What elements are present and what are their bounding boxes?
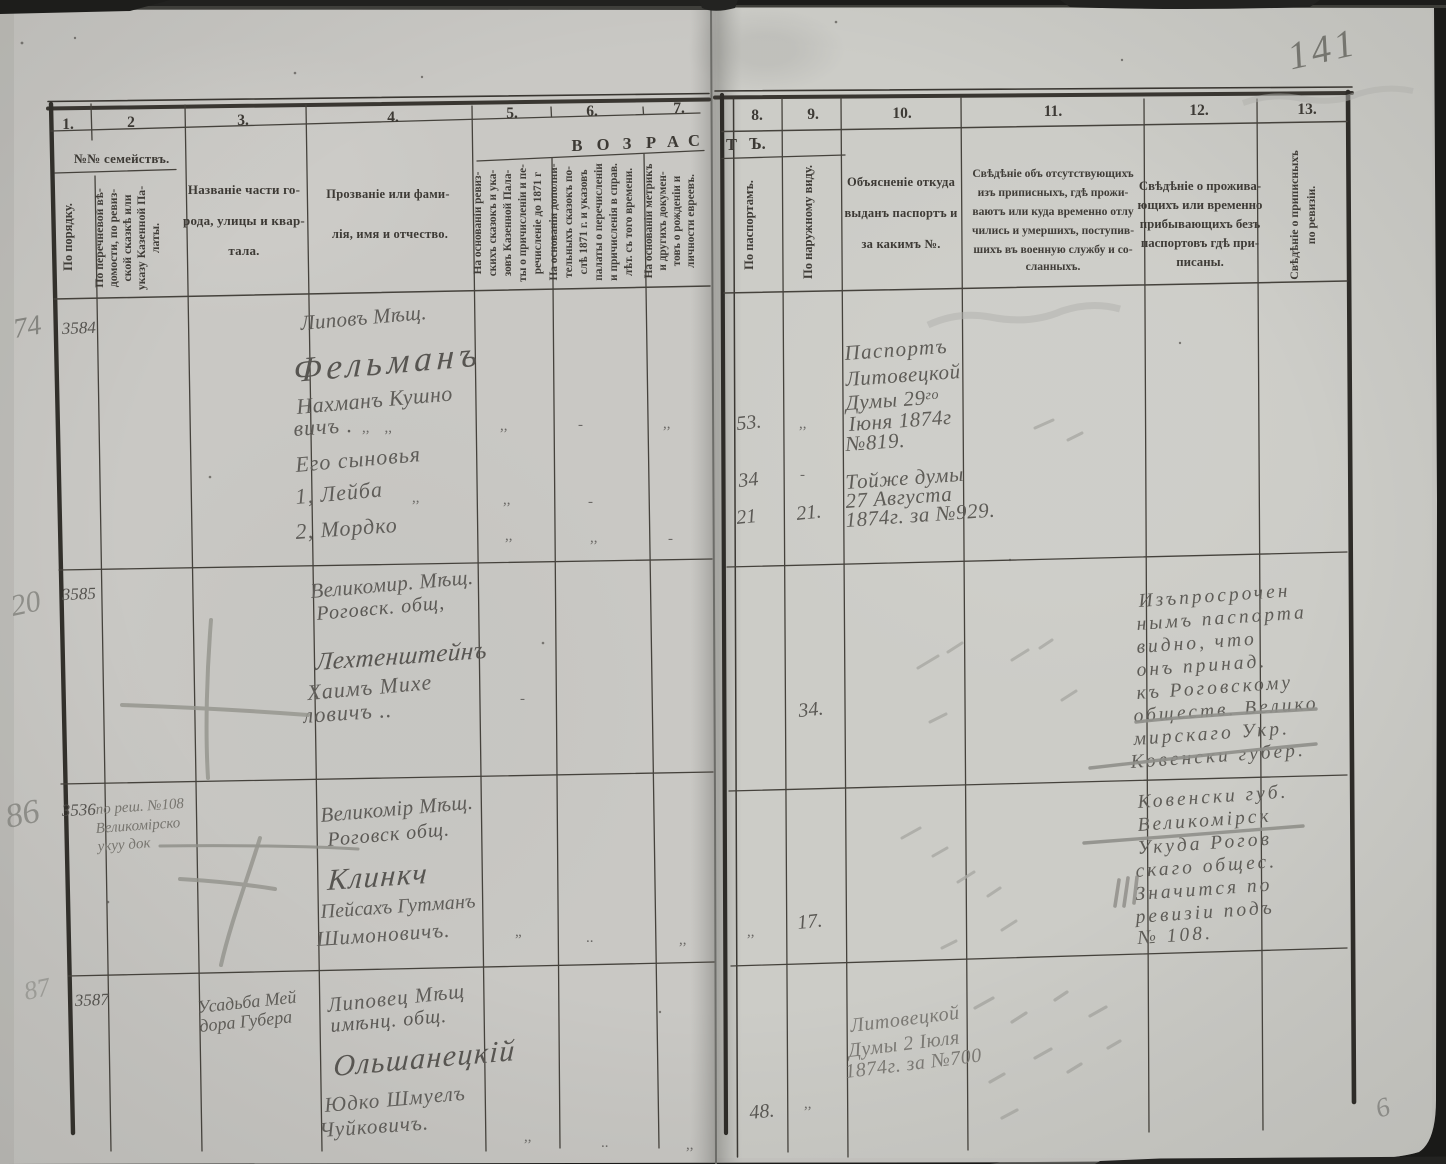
- svg-text:шихъ въ военную службу и со-: шихъ въ военную службу и со-: [973, 243, 1132, 256]
- svg-text:34: 34: [736, 468, 759, 492]
- svg-text:,,: ,,: [524, 1129, 532, 1145]
- svg-text:писаны.: писаны.: [1176, 255, 1224, 269]
- svg-text:3584: 3584: [60, 318, 96, 338]
- svg-text:Свѣдѣніе объ отсутствующихъ: Свѣдѣніе объ отсутствующихъ: [972, 167, 1134, 180]
- svg-text:,,: ,,: [505, 528, 513, 544]
- svg-text:домости, по ревиз-: домости, по ревиз-: [106, 189, 120, 287]
- svg-text:чились и умершихъ, поступив-: чились и умершихъ, поступив-: [972, 224, 1134, 237]
- svg-text:Объясненіе откуда: Объясненіе откуда: [847, 175, 956, 189]
- svg-text:-: -: [800, 467, 805, 483]
- svg-text:,,: ,,: [663, 416, 671, 432]
- svg-text:„: „: [515, 924, 522, 940]
- svg-text:3587: 3587: [73, 990, 110, 1010]
- svg-text:Названіе части го-: Названіе части го-: [188, 182, 300, 197]
- svg-text:Ъ.: Ъ.: [749, 134, 766, 153]
- svg-text:3585: 3585: [60, 584, 96, 604]
- svg-text:лѣт. съ того времени.: лѣт. съ того времени.: [623, 168, 635, 276]
- svg-text:Т: Т: [726, 135, 737, 154]
- svg-text:-: -: [668, 531, 673, 547]
- svg-text:речисленіе до 1871 г: речисленіе до 1871 г: [532, 172, 544, 274]
- svg-text:,,: ,,: [503, 492, 511, 508]
- svg-text:за какимъ №.: за какимъ №.: [861, 237, 940, 251]
- svg-text:9.: 9.: [807, 106, 819, 123]
- svg-text:тала.: тала.: [228, 243, 259, 258]
- svg-text:выданъ паспортъ и: выданъ паспортъ и: [844, 206, 957, 220]
- svg-text:Свѣдѣніе о прожива-: Свѣдѣніе о прожива-: [1139, 179, 1261, 193]
- svg-text:зовъ Казенной Пала-: зовъ Казенной Пала-: [502, 169, 514, 276]
- svg-text:С: С: [688, 131, 700, 150]
- svg-text:,,: ,,: [799, 416, 807, 432]
- svg-text:ваютъ или куда временно отлу: ваютъ или куда временно отлу: [972, 205, 1134, 218]
- svg-text:По перечневой вѣ-: По перечневой вѣ-: [92, 188, 106, 288]
- svg-text:,,: ,,: [804, 1096, 812, 1112]
- svg-text:..: ..: [586, 930, 594, 946]
- svg-text:В: В: [571, 136, 582, 155]
- svg-text:личности евреевъ.: личности евреевъ.: [685, 174, 697, 268]
- svg-text:ты о причисленіи и пе-: ты о причисленіи и пе-: [517, 164, 529, 282]
- svg-text:5.: 5.: [506, 105, 518, 122]
- svg-text:48.: 48.: [748, 1099, 775, 1123]
- svg-text:,,: ,,: [590, 530, 598, 546]
- svg-text:ющихъ или временно: ющихъ или временно: [1138, 198, 1263, 212]
- svg-text:,,: ,,: [747, 924, 755, 940]
- svg-text:53.: 53.: [735, 410, 762, 434]
- svg-text:вичъ .: вичъ .: [293, 412, 354, 441]
- svg-text:тельныхъ сказокъ по-: тельныхъ сказокъ по-: [563, 166, 575, 278]
- svg-text:По порядку.: По порядку.: [61, 203, 75, 271]
- svg-text:11.: 11.: [1044, 103, 1063, 120]
- svg-text:З: З: [623, 134, 632, 153]
- svg-text:сланныхъ.: сланныхъ.: [1026, 260, 1081, 273]
- svg-text:7.: 7.: [673, 100, 685, 117]
- svg-text:скихъ сказокъ и ука-: скихъ сказокъ и ука-: [487, 170, 499, 277]
- svg-text:17.: 17.: [796, 909, 823, 933]
- svg-text:34.: 34.: [796, 697, 824, 722]
- svg-text:10.: 10.: [892, 105, 912, 122]
- svg-text:8.: 8.: [751, 107, 763, 124]
- svg-text:палаты о перечисленіи: палаты о перечисленіи: [593, 163, 605, 281]
- svg-text:по ревизіи.: по ревизіи.: [1304, 186, 1318, 244]
- svg-text:№№ семействъ.: №№ семействъ.: [74, 151, 169, 166]
- svg-text:21: 21: [735, 505, 757, 529]
- svg-text:О: О: [597, 135, 610, 154]
- svg-text:На основаніи дополни-: На основаніи дополни-: [548, 163, 560, 280]
- svg-text:лія, имя и отчество.: лія, имя и отчество.: [332, 227, 448, 241]
- svg-text:,,: ,,: [679, 932, 687, 948]
- svg-text:,,: ,,: [412, 490, 420, 506]
- svg-text:4.: 4.: [387, 109, 399, 126]
- svg-text:..: ..: [601, 1135, 609, 1151]
- svg-text:указу Казенной Па-: указу Казенной Па-: [134, 186, 148, 290]
- svg-text:12.: 12.: [1189, 102, 1209, 119]
- svg-text:На основаніи ревиз-: На основаніи ревиз-: [472, 171, 484, 274]
- svg-text:Прозваніе или фами-: Прозваніе или фами-: [326, 187, 449, 201]
- svg-text:прибывающихъ безъ: прибывающихъ безъ: [1140, 217, 1261, 231]
- svg-text:латы.: латы.: [148, 223, 162, 253]
- svg-text:,, ,,: ,, ,,: [362, 420, 392, 436]
- svg-text:изъ приписныхъ, гдѣ прожи-: изъ приписныхъ, гдѣ прожи-: [978, 186, 1129, 199]
- svg-text:По паспортамъ.: По паспортамъ.: [742, 180, 756, 270]
- svg-text:№819.: №819.: [844, 428, 906, 456]
- svg-text:и другихъ докумен-: и другихъ докумен-: [657, 171, 669, 271]
- svg-text:74: 74: [11, 310, 44, 345]
- svg-text:товъ о рожденіи и: товъ о рожденіи и: [671, 175, 683, 266]
- svg-text:13.: 13.: [1297, 101, 1317, 118]
- svg-text:,,: ,,: [686, 1137, 694, 1153]
- svg-text:1.: 1.: [62, 116, 74, 133]
- svg-text:3536: 3536: [60, 800, 96, 820]
- svg-text:2: 2: [127, 114, 135, 131]
- svg-text:На основаніи метрикъ: На основаніи метрикъ: [643, 163, 655, 278]
- svg-text:А: А: [667, 132, 679, 151]
- svg-text:паспортовъ гдѣ при-: паспортовъ гдѣ при-: [1141, 236, 1259, 250]
- svg-text:-: -: [578, 417, 583, 433]
- svg-text:Р: Р: [646, 133, 656, 152]
- svg-text:рода, улицы и квар-: рода, улицы и квар-: [183, 213, 305, 228]
- svg-text:ской сказкѣ или: ской сказкѣ или: [120, 194, 134, 281]
- svg-text:3.: 3.: [237, 112, 249, 129]
- svg-text:,,: ,,: [500, 418, 508, 434]
- svg-text:Свѣдѣніе о приписныхъ: Свѣдѣніе о приписныхъ: [1287, 150, 1301, 280]
- svg-text:По наружному виду.: По наружному виду.: [801, 165, 815, 279]
- svg-text:слѣ 1871 г. и указовъ: слѣ 1871 г. и указовъ: [578, 169, 590, 275]
- svg-text:6.: 6.: [586, 103, 598, 120]
- svg-text:21.: 21.: [795, 500, 822, 524]
- svg-text:и причисленія в справ.: и причисленія в справ.: [608, 163, 620, 281]
- svg-text:-: -: [588, 494, 593, 510]
- svg-text:-: -: [520, 691, 525, 707]
